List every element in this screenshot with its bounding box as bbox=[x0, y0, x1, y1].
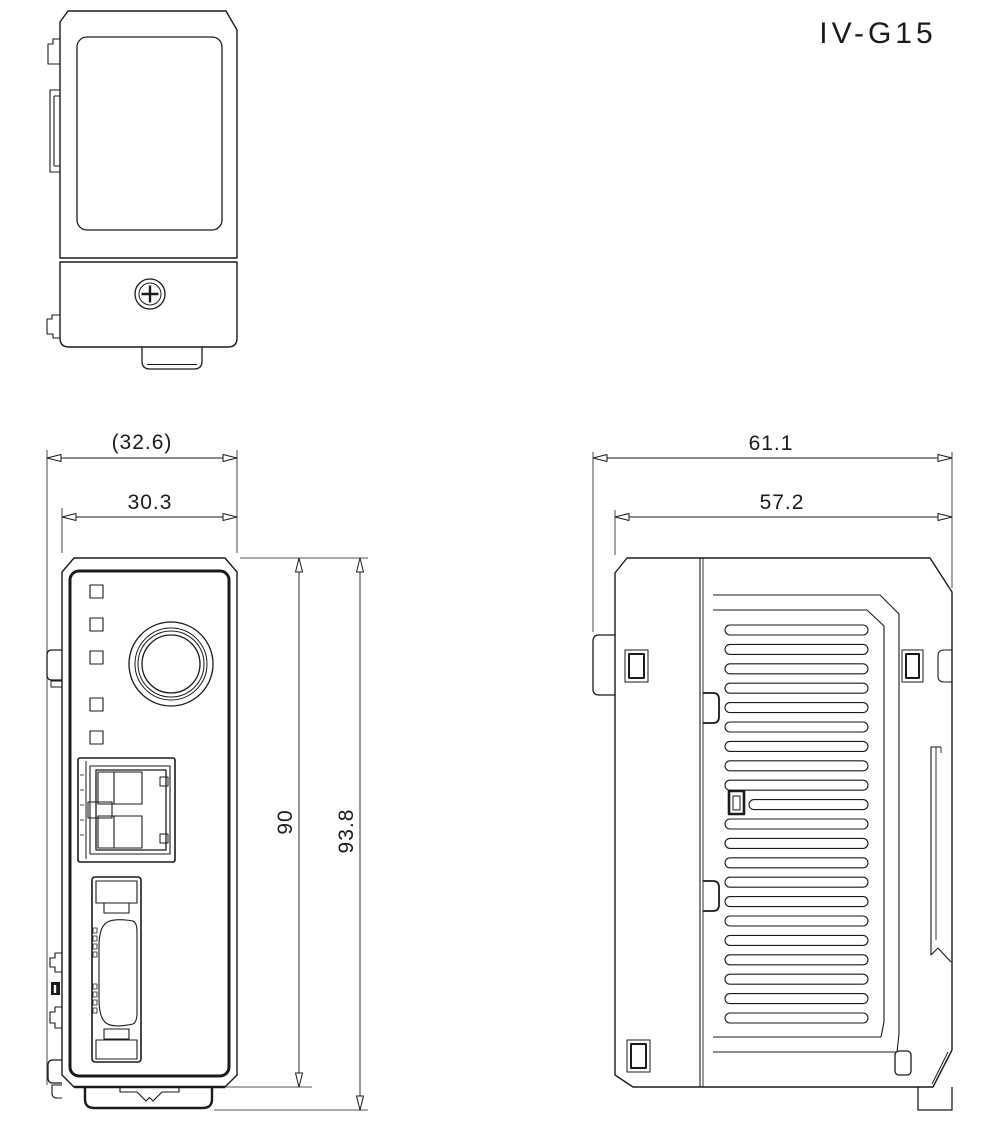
dimension-side-overall-depth: 61.1 bbox=[593, 432, 952, 632]
vent-slot bbox=[725, 625, 868, 635]
dimension-label: 57.2 bbox=[760, 491, 805, 514]
side-mount-clips bbox=[625, 650, 923, 1075]
side-front-protrusion bbox=[593, 635, 615, 695]
dimension-arrow bbox=[47, 455, 61, 462]
vent-slot bbox=[725, 955, 868, 965]
rj45-ethernet-port bbox=[78, 758, 175, 862]
led-indicator bbox=[90, 698, 103, 711]
dimension-arrow bbox=[62, 514, 76, 521]
led-indicator bbox=[90, 731, 103, 744]
vent-slot bbox=[725, 877, 868, 887]
dimension-arrow bbox=[938, 514, 952, 521]
vent-slot bbox=[725, 703, 868, 713]
dimension-arrow bbox=[593, 455, 607, 462]
top-view-display-panel bbox=[77, 37, 222, 230]
dimension-label: (32.6) bbox=[112, 431, 173, 454]
dimension-label: 90 bbox=[274, 809, 297, 834]
led-indicator bbox=[90, 651, 103, 664]
side-snap-tab-lower bbox=[703, 881, 719, 911]
side-snap-tab-upper bbox=[703, 693, 719, 723]
side-body-outline bbox=[615, 558, 952, 1087]
dimension-arrow bbox=[357, 558, 364, 572]
top-view-side-clip-upper bbox=[48, 39, 60, 64]
vent-slot bbox=[725, 897, 868, 907]
vent-slot bbox=[725, 935, 868, 945]
technical-drawing: (32.6) 30.3 90 93.8 61.1 57.2 bbox=[0, 0, 1000, 1122]
vent-slot bbox=[725, 644, 868, 654]
vent-slot bbox=[725, 1013, 868, 1023]
top-view-upper-body-outline bbox=[60, 11, 237, 258]
vent-slot-short bbox=[749, 800, 868, 810]
vent-slots bbox=[725, 625, 868, 1023]
dsub-opening bbox=[99, 920, 137, 1026]
top-view-din-tab bbox=[142, 347, 202, 369]
dsub-pin-ticks bbox=[93, 928, 97, 1013]
model-title: IV-G15 bbox=[819, 17, 936, 50]
dimension-label: 30.3 bbox=[128, 491, 173, 514]
led-indicator bbox=[90, 618, 103, 631]
top-view bbox=[47, 11, 237, 369]
vent-slot bbox=[725, 683, 868, 693]
front-left-side-clips bbox=[47, 650, 62, 1098]
dsub-connector-port bbox=[92, 877, 141, 1062]
dimension-side-body-depth: 57.2 bbox=[615, 491, 952, 555]
dimension-arrow bbox=[938, 455, 952, 462]
dimension-front-body-width: 30.3 bbox=[62, 491, 237, 553]
front-view bbox=[47, 558, 237, 1108]
vent-slot bbox=[725, 741, 868, 751]
front-din-release-tab bbox=[85, 1087, 212, 1108]
dimension-label: 61.1 bbox=[749, 432, 794, 455]
dimension-arrow bbox=[223, 514, 237, 521]
vent-slot bbox=[725, 780, 868, 790]
vent-slot bbox=[725, 994, 868, 1004]
top-view-side-bracket bbox=[50, 90, 60, 172]
dimension-drawing-sheet: (32.6) 30.3 90 93.8 61.1 57.2 bbox=[0, 0, 1000, 1122]
vent-slot bbox=[725, 974, 868, 984]
dimension-arrow bbox=[296, 558, 303, 572]
indicator-leds bbox=[90, 585, 103, 744]
side-bottom-right-inner-chamfer bbox=[932, 1052, 948, 1084]
dimension-arrow bbox=[357, 1096, 364, 1110]
vent-slot bbox=[725, 761, 868, 771]
vent-slot bbox=[725, 858, 868, 868]
dimension-label: 93.8 bbox=[335, 809, 358, 854]
vent-slot bbox=[725, 916, 868, 926]
round-connector bbox=[129, 622, 213, 706]
din-rail-hook bbox=[931, 747, 951, 962]
vent-slot bbox=[725, 819, 868, 829]
dimension-arrow bbox=[615, 514, 629, 521]
side-panel-latch bbox=[729, 791, 744, 814]
dimension-arrow bbox=[223, 455, 237, 462]
front-body-outline bbox=[62, 558, 237, 1087]
vent-slot bbox=[725, 838, 868, 848]
vent-slot bbox=[725, 722, 868, 732]
side-right-edge-notch bbox=[938, 650, 952, 682]
led-indicator bbox=[90, 585, 103, 598]
top-view-side-clip-lower bbox=[47, 315, 60, 338]
dimension-arrow bbox=[296, 1073, 303, 1087]
side-view bbox=[593, 558, 952, 1110]
phillips-screw-icon bbox=[135, 279, 165, 309]
side-bottom-foot-tab bbox=[918, 1087, 952, 1110]
vent-slot bbox=[725, 664, 868, 674]
